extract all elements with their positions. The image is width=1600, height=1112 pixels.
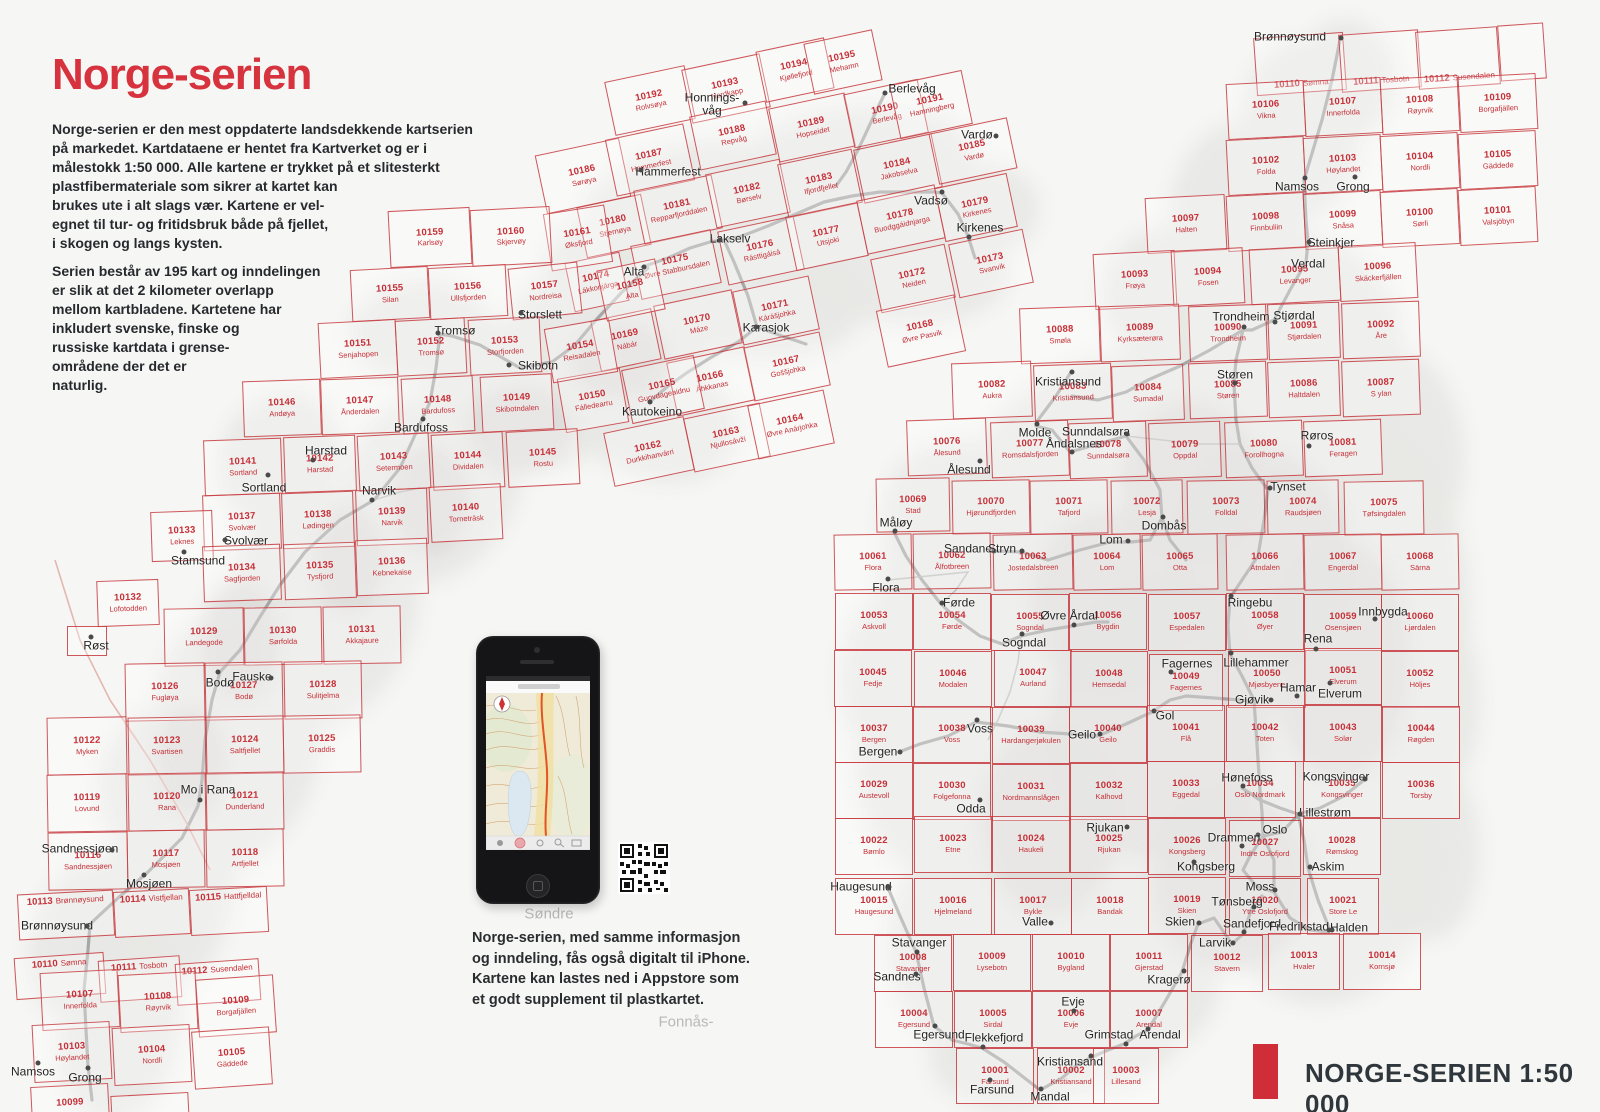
city-label-flora: Flora [872, 582, 899, 595]
intro-paragraph-2: Serien består av 195 kart og inndelingen… [52, 262, 492, 395]
city-dot [940, 601, 945, 606]
city-label-bardufoss: Bardufoss [394, 422, 448, 435]
city-label-fredrikstad: Fredrikstad [1269, 921, 1329, 934]
city-label-mosj-en: Mosjøen [126, 878, 172, 891]
city-label-storslett: Storslett [518, 309, 562, 322]
city-dot [370, 498, 375, 503]
city-dot [1049, 921, 1054, 926]
city-dot [266, 473, 271, 478]
city-dot [216, 670, 221, 675]
city-dot [1295, 694, 1300, 699]
city-label-kongsvinger: Kongsvinger [1303, 771, 1370, 784]
city-dot [933, 1024, 938, 1029]
city-label-steinkjer: Steinkjer [1308, 237, 1355, 250]
city-label-odda: Odda [956, 803, 985, 816]
city-label-sortland: Sortland [242, 482, 287, 495]
city-label-grong: Grong [1336, 181, 1369, 194]
city-dot [1307, 240, 1312, 245]
city-label-geilo: Geilo [1068, 729, 1096, 742]
city-label-fagernes: Fagernes [1162, 658, 1213, 671]
city-dot [1233, 381, 1238, 386]
city-dot [1339, 36, 1344, 41]
city-label-flekkefjord: Flekkefjord [965, 1032, 1024, 1045]
city-label-vard-: Vardø [961, 129, 993, 142]
city-label-stamsund: Stamsund [171, 555, 225, 568]
city-dot [754, 325, 759, 330]
city-dot [1229, 651, 1234, 656]
city-label-domb-s: Dombås [1142, 520, 1187, 533]
city-dot [1268, 486, 1273, 491]
city-dot [914, 972, 919, 977]
city-label-lom: Lom [1099, 534, 1122, 547]
city-label-askim: Askim [1312, 861, 1345, 874]
city-label-berlev-g: Berlevåg [888, 83, 935, 96]
city-dot [883, 91, 888, 96]
city-dot [1273, 320, 1278, 325]
city-dot [1146, 1027, 1151, 1032]
qr-code [618, 842, 670, 894]
city-dot [1298, 812, 1303, 817]
city-dot [1197, 921, 1202, 926]
city-label-br-nn-ysund: Brønnøysund [1254, 31, 1326, 44]
city-label-mo-i-rana: Mo i Rana [181, 784, 236, 797]
city-dot [1126, 539, 1131, 544]
city-dot [1070, 450, 1075, 455]
brochure-page: 10192Rolvsøya10193Nordkapp10194Kjøllefjo… [0, 0, 1600, 1112]
city-label-skien: Skien [1165, 916, 1195, 929]
city-label-krager-: Kragerø [1147, 974, 1190, 987]
city-dot [1242, 325, 1247, 330]
city-label-st-ren: Støren [1217, 369, 1253, 382]
city-dot [1070, 370, 1075, 375]
city-dot [89, 635, 94, 640]
city-dot [639, 168, 644, 173]
city-dot [1363, 777, 1368, 782]
city-label-fauske: Fauske [232, 671, 271, 684]
city-dot [1035, 422, 1040, 427]
city-label-valle: Valle [1022, 916, 1048, 929]
city-dot [1240, 844, 1245, 849]
city-label-hammerfest: Hammerfest [635, 166, 700, 179]
city-label-drammen: Drammen [1208, 832, 1261, 845]
city-label-r-st: Røst [83, 640, 108, 653]
city-label-kirkenes: Kirkenes [957, 222, 1004, 235]
city-dot [85, 924, 90, 929]
city-dot [1089, 1054, 1094, 1059]
city-dot [915, 950, 920, 955]
city-label-gj-vik: Gjøvik [1235, 694, 1269, 707]
city-dot [519, 311, 524, 316]
city-dot [967, 235, 972, 240]
city-dot [110, 848, 115, 853]
city-dot [1161, 515, 1166, 520]
city-dot [1229, 594, 1234, 599]
page-title: Norge-serien [52, 50, 311, 100]
city-dot [1353, 175, 1358, 180]
city-dot [1072, 1009, 1077, 1014]
city-label-haugesund: Haugesund [830, 881, 891, 894]
background-map-label: Søndre [524, 906, 573, 923]
city-label-bergen: Bergen [859, 746, 898, 759]
city-dot [1169, 670, 1174, 675]
city-label-br-nn-ysund: Brønnøysund [21, 920, 93, 933]
iphone-map-app [486, 676, 590, 850]
city-dot [36, 1061, 41, 1066]
city-dot [1308, 865, 1313, 870]
city-label-stavanger: Stavanger [892, 937, 947, 950]
city-dot [198, 798, 203, 803]
city-label-innbygda: Innbygda [1358, 606, 1407, 619]
city-label-farsund: Farsund [970, 1084, 1014, 1097]
city-label-voss: Voss [967, 723, 993, 736]
city-dot [994, 134, 999, 139]
intro-paragraph-1: Norge-serien er den mest oppdaterte land… [52, 120, 492, 253]
city-dot [978, 459, 983, 464]
city-dot [1192, 860, 1197, 865]
city-dot [1039, 1087, 1044, 1092]
city-dot [887, 885, 892, 890]
city-dot [1152, 709, 1157, 714]
city-dot [269, 676, 274, 681]
city-dot [1125, 825, 1130, 830]
city-dot [1328, 681, 1333, 686]
city-dot [978, 798, 983, 803]
city-dot [981, 1045, 986, 1050]
city-label-ringebu: Ringebu [1228, 597, 1273, 610]
city-dot [1330, 928, 1335, 933]
city-dot [940, 190, 945, 195]
city-dot [648, 400, 653, 405]
iphone-note: Norge-serien, med samme informasjon og i… [472, 928, 750, 1010]
city-dot [182, 550, 187, 555]
city-label-egersund: Egersund [913, 1029, 964, 1042]
city-dot [1231, 941, 1236, 946]
city-dot [1273, 888, 1278, 893]
city-label--lesund: Ålesund [947, 464, 990, 477]
city-label-svolv-r: Svolvær [224, 535, 268, 548]
city-label-sogndal: Sogndal [1002, 637, 1046, 650]
city-dot [893, 529, 898, 534]
footer-series-label: NORGE-SERIEN 1:50 000 [1305, 1058, 1600, 1112]
city-dot [1314, 647, 1319, 652]
city-label-grimstad: Grimstad [1085, 1029, 1134, 1042]
city-dot [1373, 617, 1378, 622]
city-label-sandane: Sandane [944, 543, 992, 556]
city-dot [1098, 732, 1103, 737]
city-label-harstad: Harstad [305, 445, 347, 458]
city-label-f-rde: Førde [943, 597, 975, 610]
footer-logo-bar [1253, 1044, 1278, 1099]
city-dot [1072, 623, 1077, 628]
city-label-trondheim: Trondheim [1213, 311, 1270, 324]
city-dot [975, 718, 980, 723]
city-label-mandal: Mandal [1030, 1091, 1069, 1104]
city-label-bod-: Bodø [206, 677, 235, 690]
city-label--ndalsnes: Åndalsnes [1046, 438, 1102, 451]
city-label-verdal: Verdal [1291, 258, 1325, 271]
city-label-stryn: Stryn [988, 543, 1016, 556]
city-dot [988, 1078, 993, 1083]
city-label-lillestr-m: Lillestrøm [1299, 807, 1351, 820]
city-label-kautokeino: Kautokeino [622, 406, 682, 419]
city-label-kristiansand: Kristiansand [1037, 1056, 1103, 1069]
city-dot [421, 417, 426, 422]
city-label-karasjok: Karasjok [743, 322, 790, 335]
city-dot [743, 101, 748, 106]
background-map-label: Fonnås- [658, 1014, 713, 1031]
city-label-h-nefoss: Hønefoss [1221, 772, 1272, 785]
iphone-home-button [526, 874, 550, 898]
city-label-r-ros: Røros [1301, 430, 1334, 443]
city-label--vre-rdal: Øvre Årdal [1040, 610, 1097, 623]
city-dot [1252, 905, 1257, 910]
city-label-larvik: Larvik [1199, 937, 1231, 950]
city-dot [1020, 632, 1025, 637]
iphone-screen [486, 676, 590, 850]
city-dot [1020, 549, 1025, 554]
city-label-m-l-y: Måløy [880, 517, 913, 530]
city-dot [507, 363, 512, 368]
city-label-namsos: Namsos [11, 1066, 55, 1079]
city-label-honnings-v-g: Honnings- våg [685, 91, 740, 116]
city-dot [142, 873, 147, 878]
city-label-namsos: Namsos [1275, 181, 1319, 194]
city-label-gol: Gol [1156, 710, 1175, 723]
city-label-rjukan: Rjukan [1086, 822, 1123, 835]
city-label-vads-: Vadsø [914, 195, 948, 208]
city-label-hamar: Hamar [1280, 682, 1316, 695]
city-label-kongsberg: Kongsberg [1177, 861, 1235, 874]
iphone-speaker-icon [520, 660, 554, 664]
city-dot [642, 265, 647, 270]
city-label-stj-rdal: Stjørdal [1273, 310, 1314, 323]
city-dot [1125, 432, 1130, 437]
city-label-lakselv: Lakselv [710, 233, 751, 246]
city-label-tynset: Tynset [1270, 481, 1305, 494]
city-dot [1307, 444, 1312, 449]
city-label-halden: Halden [1330, 922, 1368, 935]
city-dot [311, 458, 316, 463]
city-label-skibotn: Skibotn [518, 360, 558, 373]
city-label-lillehammer: Lillehammer [1223, 657, 1288, 670]
city-dot [1242, 930, 1247, 935]
iphone-camera-icon [534, 647, 540, 653]
city-dot [1124, 1042, 1129, 1047]
city-dot [898, 750, 903, 755]
city-dot [1182, 969, 1187, 974]
city-dot [1269, 698, 1274, 703]
city-label-rena: Rena [1304, 633, 1333, 646]
city-dot [718, 238, 723, 243]
city-label-narvik: Narvik [362, 485, 396, 498]
iphone-mockup [476, 636, 600, 904]
city-label-elverum: Elverum [1318, 688, 1362, 701]
city-dot [1303, 176, 1308, 181]
city-dot [86, 1066, 91, 1071]
city-label-grong: Grong [68, 1072, 101, 1085]
city-dot [886, 577, 891, 582]
city-label-moss: Moss [1246, 881, 1275, 894]
city-label-evje: Evje [1061, 996, 1084, 1009]
city-dot [223, 538, 228, 543]
city-label-oslo: Oslo [1263, 824, 1288, 837]
city-dot [1241, 784, 1246, 789]
city-label-sandnessj-en: Sandnessjøen [42, 843, 119, 856]
city-label-kristiansund: Kristiansund [1035, 376, 1101, 389]
